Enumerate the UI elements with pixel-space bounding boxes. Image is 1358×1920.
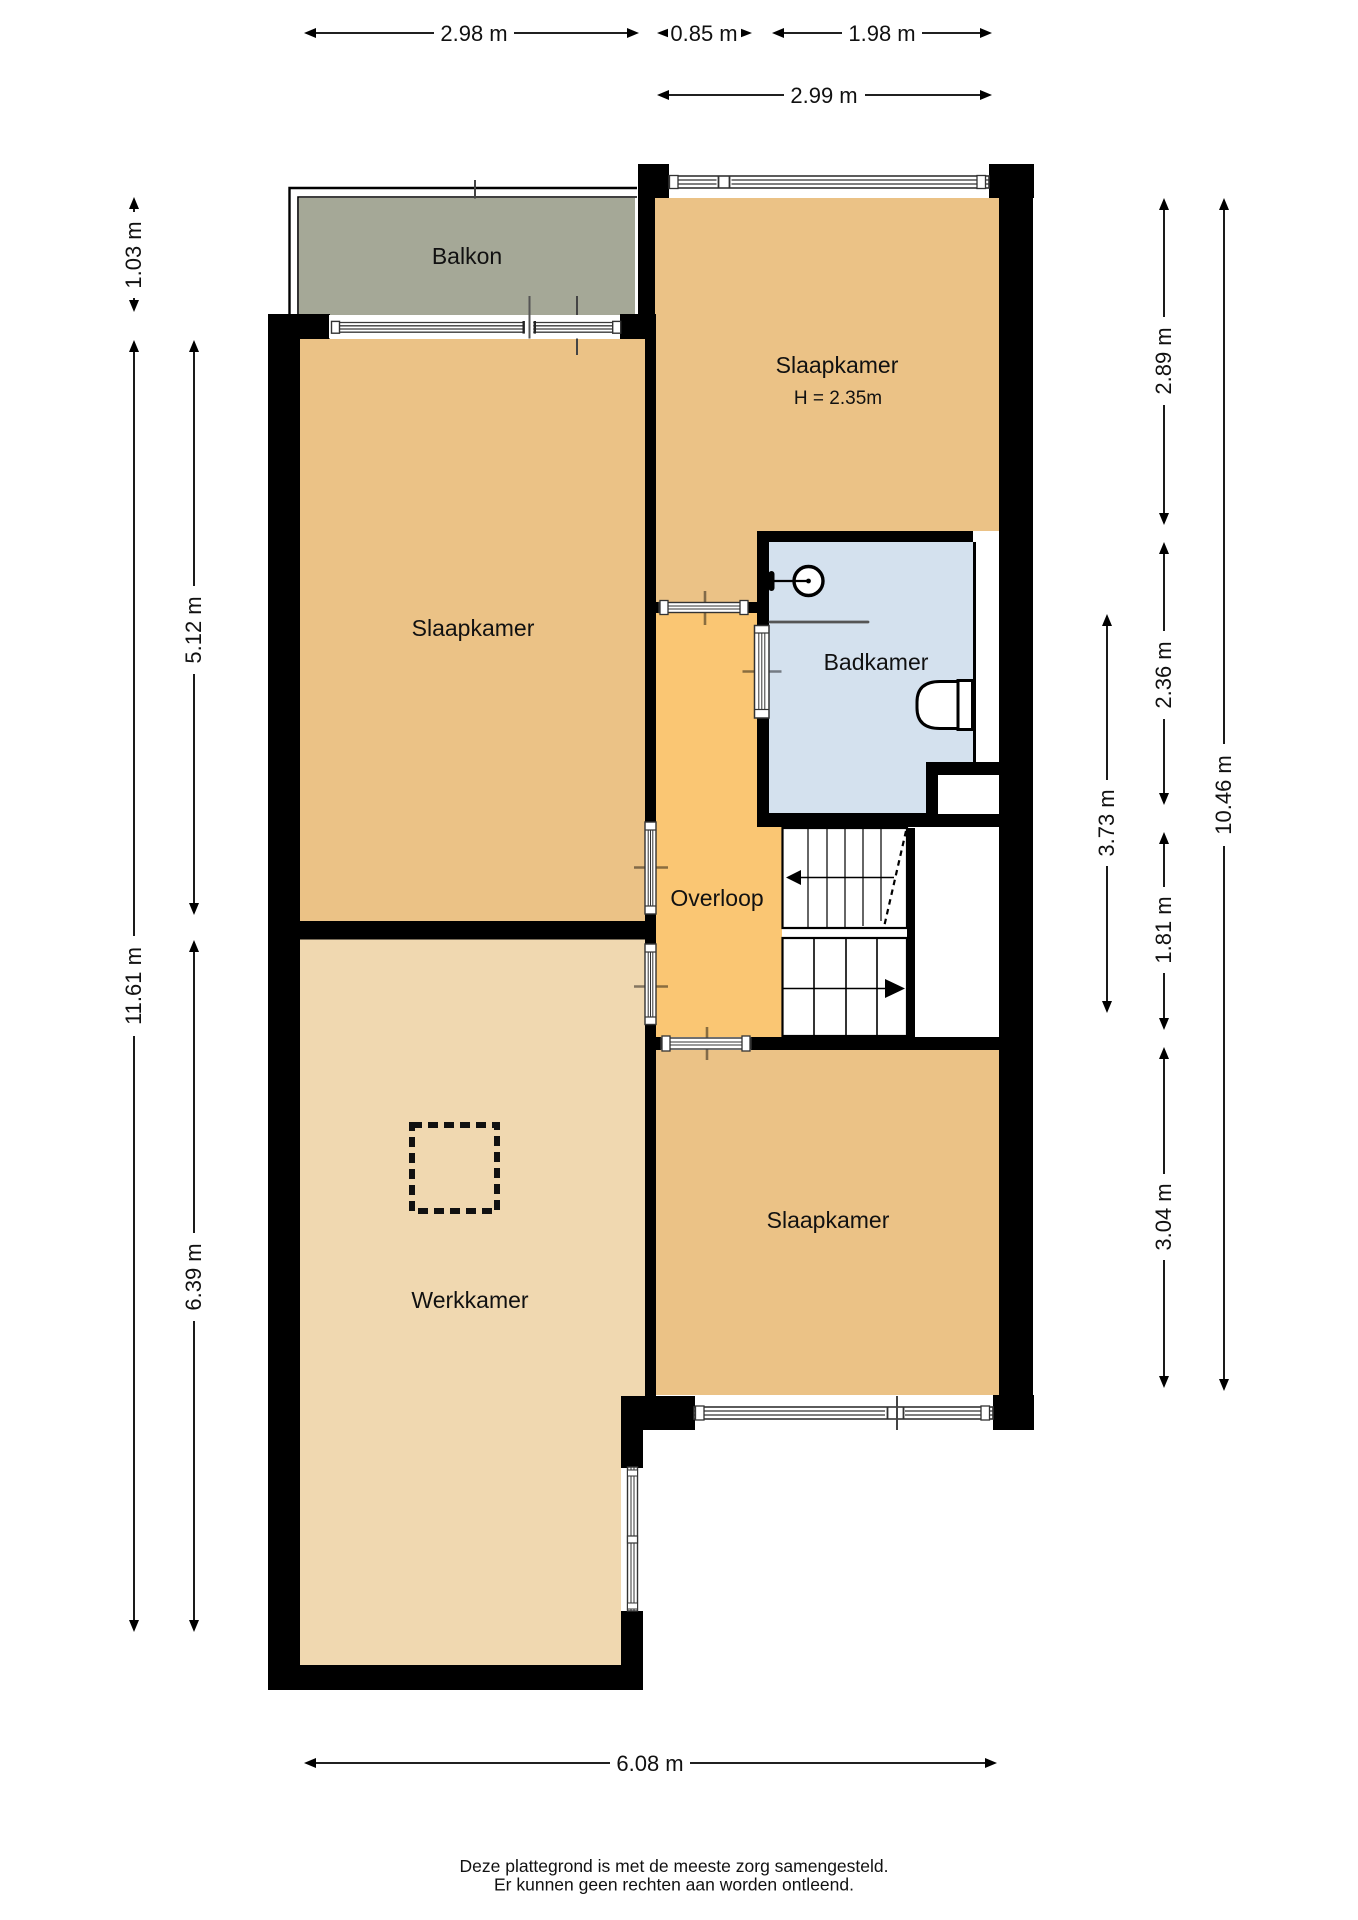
svg-text:5.12 m: 5.12 m xyxy=(181,596,206,663)
svg-text:10.46 m: 10.46 m xyxy=(1211,755,1236,835)
svg-text:6.08 m: 6.08 m xyxy=(616,1751,683,1776)
svg-text:Badkamer: Badkamer xyxy=(824,649,929,675)
svg-text:H = 2.35m: H = 2.35m xyxy=(794,388,882,409)
svg-text:2.89 m: 2.89 m xyxy=(1151,327,1176,394)
svg-text:Werkkamer: Werkkamer xyxy=(411,1287,528,1313)
svg-text:Slaapkamer: Slaapkamer xyxy=(412,615,535,641)
svg-text:Er kunnen geen rechten aan wor: Er kunnen geen rechten aan worden ontlee… xyxy=(494,1875,854,1895)
svg-text:Deze plattegrond is met de mee: Deze plattegrond is met de meeste zorg s… xyxy=(460,1856,889,1876)
svg-text:Overloop: Overloop xyxy=(670,885,763,911)
svg-text:1.03 m: 1.03 m xyxy=(121,221,146,288)
svg-text:1.81 m: 1.81 m xyxy=(1151,896,1176,963)
svg-text:3.73 m: 3.73 m xyxy=(1094,789,1119,856)
svg-text:Slaapkamer: Slaapkamer xyxy=(767,1207,890,1233)
svg-text:Slaapkamer: Slaapkamer xyxy=(776,352,899,378)
svg-text:11.61 m: 11.61 m xyxy=(121,947,146,1025)
svg-text:Balkon: Balkon xyxy=(432,243,502,269)
svg-text:2.98 m: 2.98 m xyxy=(440,21,507,46)
svg-text:0.85 m: 0.85 m xyxy=(670,21,737,46)
svg-text:2.99 m: 2.99 m xyxy=(790,83,857,108)
svg-text:6.39 m: 6.39 m xyxy=(181,1243,206,1310)
svg-text:1.98 m: 1.98 m xyxy=(848,21,915,46)
svg-text:3.04 m: 3.04 m xyxy=(1151,1183,1176,1250)
svg-text:2.36 m: 2.36 m xyxy=(1151,641,1176,708)
